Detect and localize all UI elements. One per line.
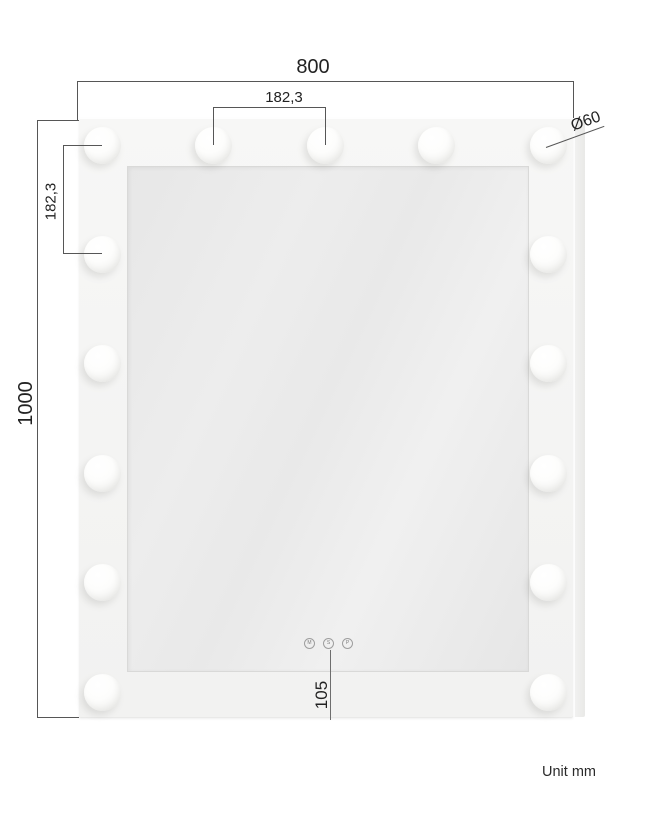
touch-button-3-label: P	[346, 641, 349, 646]
mirror-side-face	[574, 120, 585, 717]
dim-height-ext-top	[37, 120, 79, 121]
touch-button-2: S	[323, 638, 334, 649]
light-bulb	[530, 674, 567, 711]
dim-bulb-spacing-top-ext-left	[213, 107, 214, 145]
dim-width-ext-right	[573, 81, 574, 118]
light-bulb	[84, 236, 121, 273]
light-bulb	[84, 564, 121, 601]
dim-bulb-spacing-top-ext-right	[325, 107, 326, 145]
dim-bulb-spacing-left-ext-bottom	[63, 253, 102, 254]
dimension-diagram: M S P 800 182,3 Ø60 1000 182,3 105 Unit …	[0, 0, 662, 828]
dim-width-line	[77, 81, 574, 82]
mirror-frame	[79, 118, 573, 718]
dim-height-label: 1000	[6, 381, 46, 425]
light-bulb	[530, 345, 567, 382]
light-bulb	[84, 674, 121, 711]
dim-height-label-text: 1000	[15, 381, 38, 426]
dim-bulb-spacing-left-ext-top	[63, 145, 102, 146]
dim-bulb-diameter-label: Ø60	[558, 105, 613, 140]
light-bulb	[84, 455, 121, 492]
light-bulb	[418, 127, 455, 164]
dim-bulb-spacing-left-label: 182,3	[36, 181, 66, 222]
touch-button-3: P	[342, 638, 353, 649]
light-bulb	[84, 345, 121, 382]
dim-control-offset-label: 105	[307, 675, 337, 714]
touch-button-2-label: S	[327, 641, 330, 646]
dim-bulb-spacing-left-label-text: 182,3	[43, 183, 60, 221]
unit-note: Unit mm	[542, 764, 606, 780]
dim-width-label: 800	[285, 56, 341, 78]
dim-height-ext-bottom	[37, 717, 79, 718]
touch-button-1: M	[304, 638, 315, 649]
light-bulb	[530, 455, 567, 492]
touch-button-1-label: M	[307, 641, 311, 646]
dim-control-offset-label-text: 105	[312, 680, 332, 708]
dim-bulb-spacing-top-label: 182,3	[256, 89, 312, 106]
dim-bulb-spacing-top-line	[213, 107, 326, 108]
light-bulb	[530, 564, 567, 601]
mirror-surface	[127, 166, 529, 672]
dim-width-ext-left	[77, 81, 78, 120]
light-bulb	[530, 236, 567, 273]
